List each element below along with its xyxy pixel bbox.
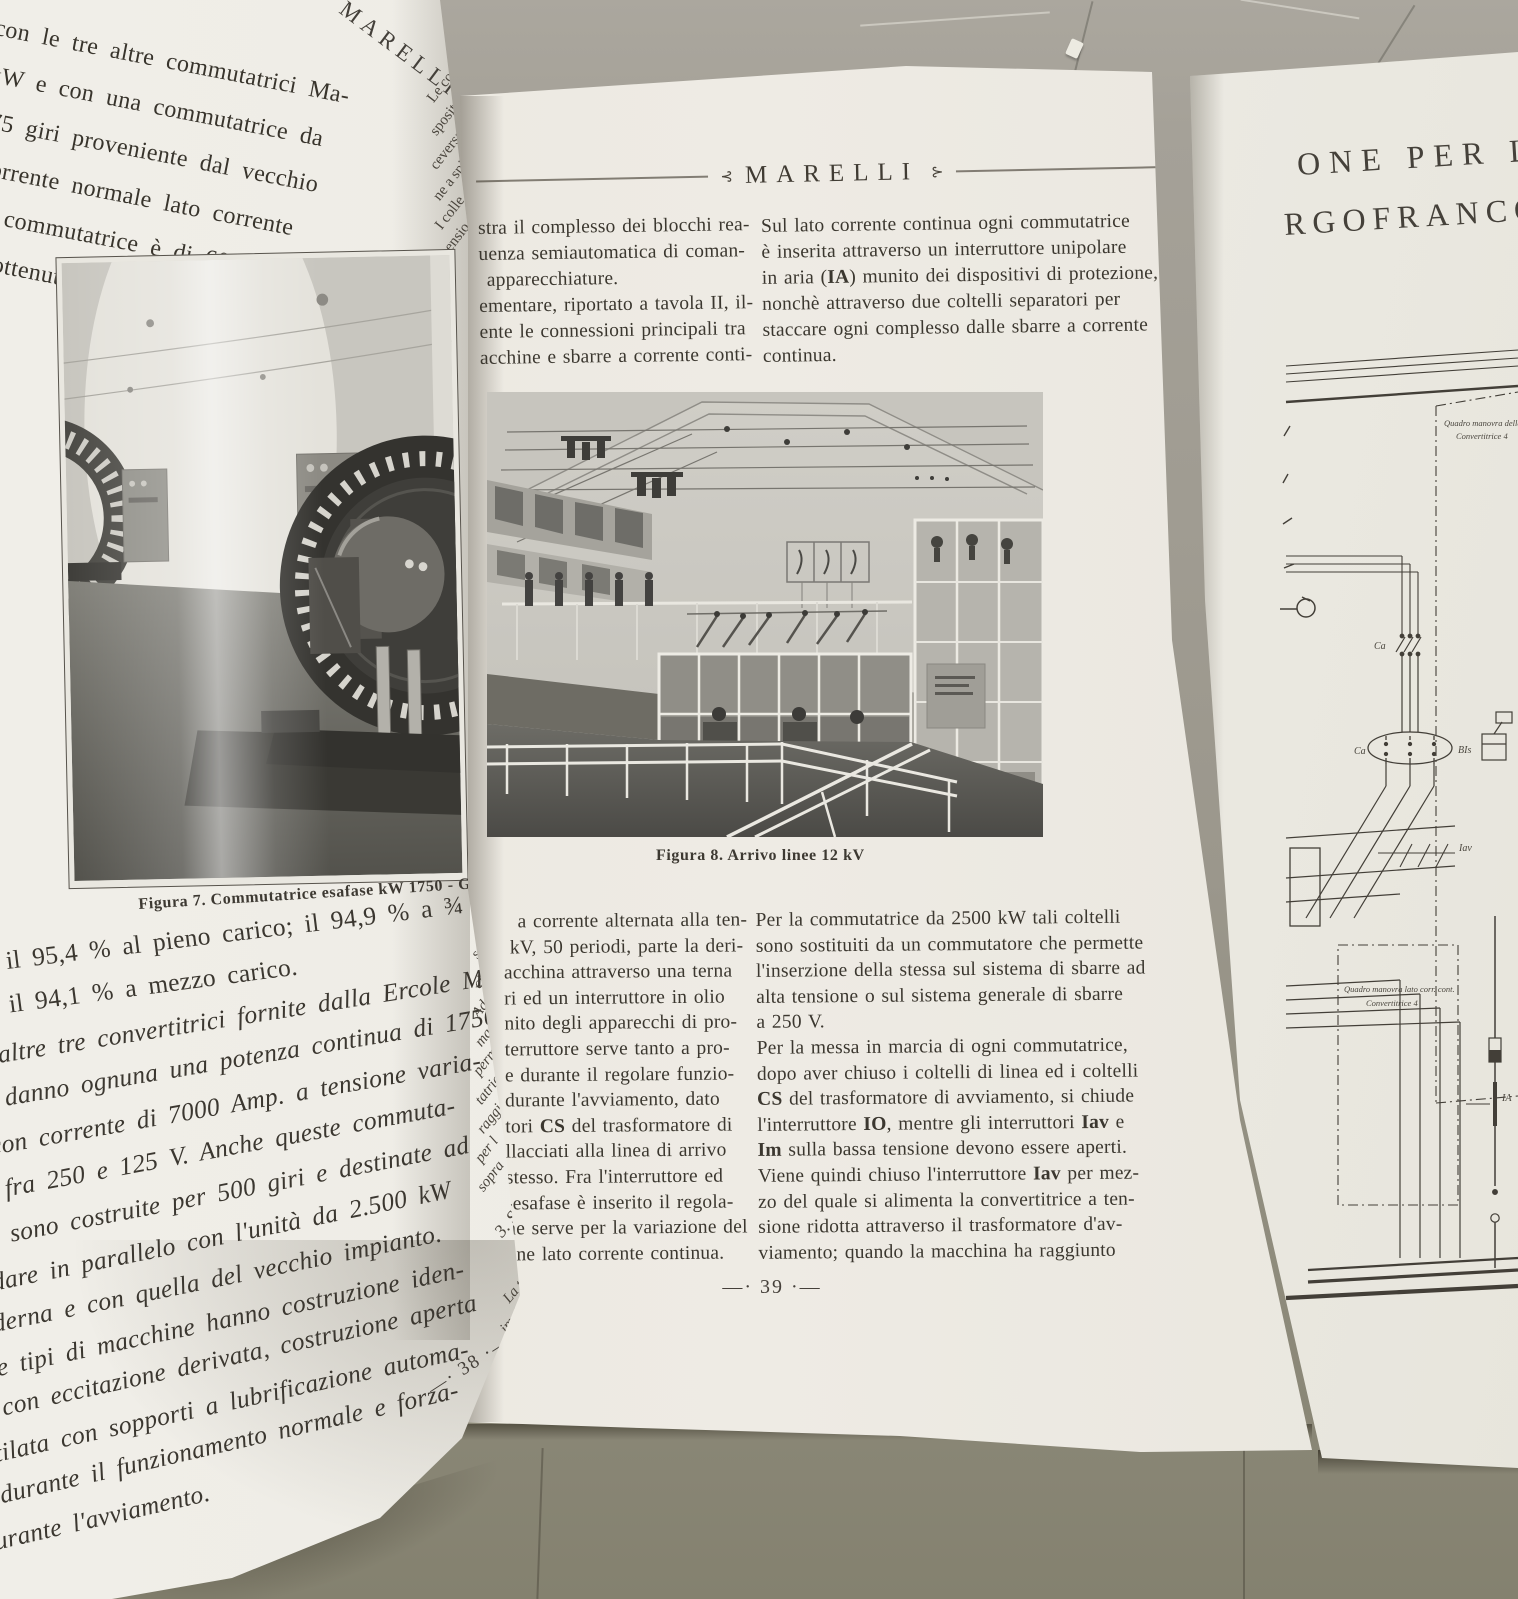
column-2-bottom: Per la commutatrice da 2500 kW tali colt… (755, 904, 1193, 1266)
text-line: stra il complesso dei blocchi rea- (478, 212, 760, 242)
label-ca-oval: Ca (1354, 746, 1366, 757)
floor-seam (536, 1448, 543, 1599)
text-line: continua. (763, 338, 1183, 370)
figure8-caption: Figura 8. Arrivo linee 12 kV (656, 847, 865, 865)
foldout-title-line1: ONE PER LA (1296, 129, 1518, 183)
foldout-title-line2: RGOFRANCO (1283, 190, 1518, 243)
text-line: l'inserzione della stessa sul sistema di… (756, 955, 1191, 984)
text-line: dopo aver chiuso i coltelli di linea ed … (757, 1058, 1192, 1087)
label-lower-box-1: Quadro manovra lato corr. cont. (1344, 984, 1455, 994)
diagram-knife-switch (1378, 844, 1455, 867)
text-line: sione ridotta attraverso il trasformator… (758, 1211, 1193, 1240)
text-line: Per la commutatrice da 2500 kW tali colt… (755, 904, 1190, 933)
head-rule-right (956, 166, 1188, 172)
diagram-crossing-wires (1286, 764, 1455, 918)
floor-scratch (1377, 5, 1416, 65)
text-line: alta tensione o sul sistema generale di … (756, 981, 1191, 1010)
page-glare (62, 255, 463, 881)
paper-scrap (1065, 38, 1084, 59)
text-line: sono sostituiti da un commutatore che pe… (756, 930, 1191, 959)
diagram-instrument-symbol (1280, 597, 1315, 617)
text-line: apparecchiature. (479, 264, 761, 294)
label-upper-box-2: Convertitrice 4 (1456, 431, 1508, 441)
head-rule-left (476, 176, 708, 182)
page-number-39: —· 39 ·— (692, 1276, 852, 1299)
text-line: Im sulla bassa tensione devono essere ap… (757, 1134, 1192, 1163)
figure7-frame (55, 249, 468, 889)
label-upper-box-1: Quadro manovra della (1444, 418, 1518, 428)
text-line: l'interruttore IO, mentre gli interrutto… (757, 1109, 1192, 1138)
running-head: ⊰ MARELLI ⊱ (476, 153, 1188, 196)
text-line: ente le connessioni principali tra (479, 316, 761, 346)
text-line: Viene quindi chiuso l'interruttore Iav p… (758, 1160, 1193, 1189)
diagram-commutator-oval (1368, 732, 1452, 764)
photo-of-open-book: ONE PER LA RGOFRANCO (0, 0, 1518, 1599)
diagram-bottom-bus (1286, 1258, 1518, 1298)
column-1-top: stra il complesso dei blocchi rea- uenza… (478, 212, 762, 372)
floor-seam (1243, 1438, 1245, 1599)
diagram-lower-bundle (1286, 980, 1460, 1258)
text-line: uenza semiautomatica di coman- (478, 238, 760, 268)
text-line: viamento; quando la macchina ha raggiunt… (758, 1237, 1193, 1266)
label-iav: Iav (1458, 843, 1472, 854)
ornament-left-icon: ⊰ (720, 167, 733, 185)
diagram-ia-feeder (1466, 916, 1501, 1268)
figure8-photo (487, 392, 1043, 837)
diagram-ca-contacts (1396, 634, 1421, 732)
text-line: Per la messa in marcia di ogni commutatr… (757, 1032, 1192, 1061)
text-line: CS del trasformatore di avviamento, si c… (757, 1083, 1192, 1112)
label-bis: BIs (1458, 745, 1471, 756)
diagram-margin-marks (1283, 426, 1294, 568)
text-line: a 250 V. (756, 1006, 1191, 1035)
label-ia: IA (1501, 1093, 1512, 1104)
floor-scratch (860, 11, 1050, 26)
text-line: ementare, riportato a tavola II, il- (479, 290, 761, 320)
column-2-top: Sul lato corrente continua ogni commutat… (761, 208, 1183, 370)
diagram-top-bus (1286, 350, 1518, 402)
diagram-left-apparatus (1290, 848, 1320, 926)
wiring-diagram: Ca Ca Iav BIs IA Quadro manovra della Co… (1250, 318, 1518, 1358)
running-head-title: MARELLI (745, 158, 920, 190)
label-ca-switch: Ca (1374, 641, 1386, 652)
text-line: zo del quale si alimenta la convertitric… (758, 1186, 1193, 1215)
figure7-photo (62, 255, 463, 881)
floor-scratch (1241, 0, 1360, 19)
ornament-right-icon: ⊱ (931, 163, 944, 181)
text-line: acchine e sbarre a corrente conti- (480, 342, 762, 372)
diagram-bis-component (1482, 712, 1512, 760)
cabinet-sign (927, 664, 985, 728)
label-lower-box-2: Convertitrice 4 (1366, 998, 1418, 1008)
diagram-mid-bus (1286, 556, 1418, 634)
